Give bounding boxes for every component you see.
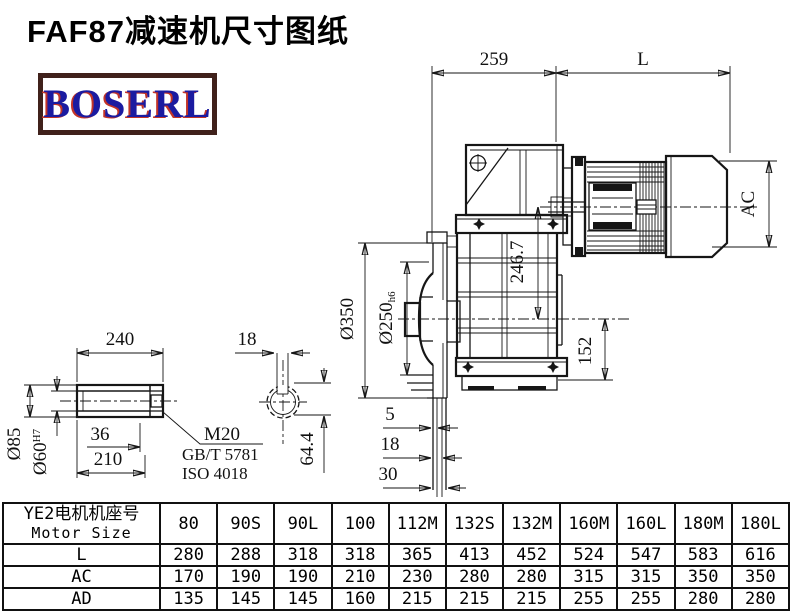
dim-30: 30 <box>379 464 398 485</box>
bolt-diamond-icon <box>462 361 474 373</box>
row-label: AD <box>3 588 160 610</box>
dim-259: 259 <box>480 49 509 70</box>
column-header: 160L <box>617 503 674 544</box>
column-header: 112M <box>389 503 446 544</box>
dimension-drawing: 259 L AC 246.7 152 Ø350 Ø250h6 <box>0 0 800 502</box>
column-header: 132S <box>446 503 503 544</box>
column-header: 80 <box>160 503 217 544</box>
column-header: 180M <box>675 503 732 544</box>
bolt-diamond-icon <box>547 218 559 230</box>
header-cn: YE2电机机座号 <box>4 505 159 525</box>
dim-36: 36 <box>91 424 110 445</box>
column-header: 90L <box>274 503 331 544</box>
dim-AC: AC <box>738 191 759 217</box>
row-label: L <box>3 544 160 566</box>
column-header: 180L <box>732 503 789 544</box>
dimensions: 259 L AC 246.7 152 Ø350 Ø250h6 <box>4 49 777 488</box>
column-header: 132M <box>503 503 560 544</box>
dim-thread: M20 <box>204 424 240 445</box>
header-en: Motor Size <box>4 525 159 542</box>
dim-152: 152 <box>575 337 596 366</box>
row-label: AC <box>3 566 160 588</box>
dim-210: 210 <box>94 449 123 470</box>
motor-size-table: YE2电机机座号 Motor Size 80 90S 90L 100 112M … <box>2 502 790 611</box>
standard-gbt: GB/T 5781 <box>182 445 259 464</box>
column-header: 100 <box>332 503 389 544</box>
dim-240: 240 <box>106 329 135 350</box>
dim-shaft-od: Ø85 <box>4 428 25 461</box>
table-header-cell: YE2电机机座号 Motor Size <box>3 503 160 544</box>
dim-L: L <box>637 49 649 70</box>
output-flange-view <box>405 232 460 497</box>
dim-spigot: Ø250h6 <box>376 291 398 345</box>
bolt-diamond-icon <box>547 361 559 373</box>
table-row-AD: AD 135 145 145 160 215 215 215 255 255 2… <box>3 588 789 610</box>
dim-64-4: 64.4 <box>297 432 318 466</box>
dim-key-width: 18 <box>238 329 257 350</box>
column-header: 90S <box>217 503 274 544</box>
table-header-row: YE2电机机座号 Motor Size 80 90S 90L 100 112M … <box>3 503 789 544</box>
column-header: 160M <box>560 503 617 544</box>
standard-iso: ISO 4018 <box>182 464 248 483</box>
dim-5: 5 <box>385 404 395 425</box>
drawing-sheet: FAF87减速机尺寸图纸 BOSERL <box>0 0 800 614</box>
dim-18-step: 18 <box>381 434 400 455</box>
table-row-AC: AC 170 190 190 210 230 280 280 315 315 3… <box>3 566 789 588</box>
table-row-L: L 280 288 318 318 365 413 452 524 547 58… <box>3 544 789 566</box>
motor-view <box>548 156 727 257</box>
dim-246-7: 246.7 <box>507 241 528 284</box>
dim-flange-od: Ø350 <box>337 298 358 340</box>
bolt-diamond-icon <box>473 218 485 230</box>
dim-bore: Ø60H7 <box>30 428 51 475</box>
